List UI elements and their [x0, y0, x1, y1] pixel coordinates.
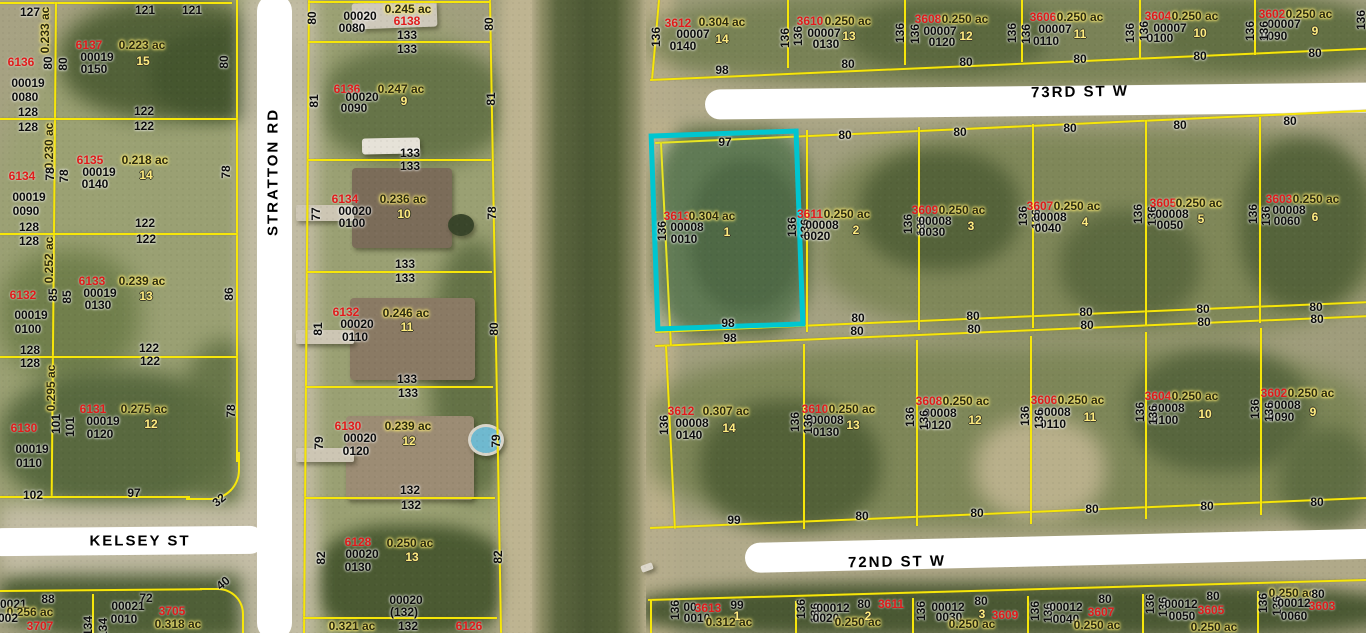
dimension-label: 00020: [343, 432, 376, 444]
lot-number-label: 11: [401, 321, 414, 333]
dimension-label: 0060: [1281, 610, 1308, 622]
dimension-label: 122: [139, 342, 159, 354]
dimension-label: 133: [397, 29, 417, 41]
dimension-label: 78: [486, 206, 498, 219]
dimension-label: 0120: [87, 428, 114, 440]
dimension-label: 121: [135, 4, 155, 16]
dimension-label: 132: [401, 499, 421, 511]
dimension-label: 136: [1144, 594, 1156, 614]
dimension-label: 00012: [1277, 597, 1310, 609]
parcel-id-label: 3611: [878, 598, 904, 610]
acreage-label: 0.250 ac: [949, 618, 996, 630]
dimension-label: 136: [915, 601, 927, 621]
dimension-label: 102: [23, 489, 43, 501]
parcel-id-label: 3705: [159, 605, 186, 617]
dimension-label: 0030: [919, 226, 946, 238]
dimension-label: 80: [1063, 122, 1076, 134]
parcel-boundary-line: [650, 497, 1366, 529]
lot-number-label: 12: [968, 414, 981, 426]
acreage-label: 0.295 ac: [45, 365, 57, 412]
lot-number-label: 11: [1074, 28, 1087, 40]
dimension-label: 136: [1020, 24, 1032, 44]
dimension-label: 136: [1134, 402, 1146, 422]
parcel-boundary-line: [665, 346, 676, 529]
street-label-72nd: 72ND ST W: [848, 554, 946, 571]
parcel-id-label: 6136: [8, 56, 35, 68]
dimension-label: 0080: [339, 22, 366, 34]
acreage-label: 0.236 ac: [380, 193, 427, 205]
parcel-id-label: 6126: [456, 620, 483, 632]
dimension-label: 133: [395, 258, 415, 270]
dimension-label: 80: [970, 507, 983, 519]
dimension-label: 82: [315, 551, 327, 564]
dimension-label: 80: [966, 310, 979, 322]
dimension-label: 101: [64, 417, 76, 437]
dimension-label: 136: [1355, 10, 1366, 30]
dimension-label: 136: [1247, 204, 1259, 224]
parcel-boundary-line: [1030, 336, 1032, 524]
lot-number-label: 6: [1312, 211, 1319, 223]
parcel-boundary-line: [650, 48, 1366, 81]
dimension-label: 80: [841, 58, 854, 70]
dimension-label: 133: [397, 43, 417, 55]
acreage-label: 0.250 ac: [387, 537, 434, 549]
acreage-label: 0.252 ac: [43, 237, 55, 284]
dimension-label: 0010: [111, 613, 138, 625]
dimension-label: 80: [1085, 503, 1098, 515]
lot-number-label: 5: [1198, 213, 1205, 225]
acreage-label: 0.318 ac: [155, 618, 202, 630]
acreage-label: 0.321 ac: [329, 620, 376, 632]
dimension-label: 134: [82, 616, 94, 633]
lot-number-label: 2: [853, 224, 860, 236]
dimension-label: 132: [400, 484, 420, 496]
dimension-label: 0020: [804, 230, 831, 242]
lot-number-label: 13: [139, 290, 152, 302]
dimension-label: 136: [1249, 399, 1261, 419]
dimension-label: 80: [57, 57, 69, 70]
lot-number-label: 4: [1082, 216, 1089, 228]
dimension-label: 78: [225, 404, 237, 417]
dimension-label: 80: [838, 129, 851, 141]
dimension-label: 80: [851, 312, 864, 324]
dimension-label: 0060: [1274, 215, 1301, 227]
dimension-label: 002: [0, 612, 18, 624]
dimension-label: 80: [953, 126, 966, 138]
parcel-id-label: 3707: [27, 620, 54, 632]
dimension-label: 80: [483, 17, 495, 30]
dimension-label: 80: [1308, 47, 1321, 59]
dimension-label: 0130: [85, 299, 112, 311]
dimension-label: 136: [1138, 21, 1150, 41]
dimension-label: 122: [140, 355, 160, 367]
acreage-label: 0.250 ac: [1074, 619, 1121, 631]
dimension-label: 0110: [342, 331, 368, 343]
street-label-stratton: STRATTON RD: [266, 108, 281, 236]
dimension-label: 133: [395, 272, 415, 284]
dimension-label: 79: [313, 436, 325, 449]
dimension-label: 80: [1196, 303, 1209, 315]
dimension-label: 80: [306, 11, 318, 24]
dimension-label: 136: [1258, 21, 1270, 41]
lot-number-label: 9: [401, 95, 408, 107]
dimension-label: 81: [485, 92, 497, 105]
lot-number-label: 12: [402, 435, 415, 447]
parcel-id-label: 6138: [394, 15, 421, 27]
dimension-label: 0080: [12, 91, 39, 103]
dimension-label: 85: [61, 290, 73, 303]
dimension-label: 79: [490, 434, 502, 447]
dimension-label: 0140: [670, 40, 697, 52]
dimension-label: 0010: [671, 233, 698, 245]
acreage-label: 0.223 ac: [119, 39, 166, 51]
dimension-label: 77: [310, 207, 322, 220]
dimension-label: 80: [1079, 306, 1092, 318]
parcel-id-label: 3605: [1198, 604, 1225, 616]
aerial-parcel-map[interactable]: 1271211210.233 ac61370001901500.223 ac15…: [0, 0, 1366, 633]
dimension-label: 00020: [340, 318, 373, 330]
acreage-label: 0.307 ac: [703, 405, 750, 417]
dimension-label: 0110: [1033, 35, 1059, 47]
dimension-label: 81: [312, 322, 324, 335]
acreage-label: 0.312 ac: [706, 616, 753, 628]
dimension-label: 82: [492, 550, 504, 563]
dimension-label: (132): [390, 606, 418, 618]
dimension-label: 80: [488, 322, 500, 335]
parcel-boundary-line: [0, 588, 202, 592]
dimension-label: 80: [1173, 119, 1186, 131]
lot-number-label: 13: [405, 551, 418, 563]
parcel-id-label: 6134: [9, 170, 36, 182]
dimension-label: 00021: [111, 600, 144, 612]
dimension-label: 0130: [813, 38, 840, 50]
dimension-label: 97: [127, 487, 140, 499]
dimension-label: 122: [134, 105, 154, 117]
dimension-label: 136: [1029, 601, 1041, 621]
dimension-label: 80: [1310, 496, 1323, 508]
acreage-label: 0.246 ac: [383, 307, 430, 319]
dimension-label: 122: [134, 120, 154, 132]
dimension-label: 136: [1257, 593, 1269, 613]
dimension-label: 121: [182, 4, 202, 16]
lot-number-label: 13: [846, 419, 859, 431]
lot-number-label: 3: [968, 220, 975, 232]
dimension-label: 133: [398, 387, 418, 399]
dimension-label: 136: [1260, 206, 1272, 226]
lot-number-label: 10: [1193, 27, 1206, 39]
dimension-label: 136: [1263, 402, 1275, 422]
dimension-label: 136: [904, 407, 916, 427]
dimension-label: 136: [1006, 23, 1018, 43]
dimension-label: 98: [715, 64, 728, 76]
dimension-label: 133: [400, 147, 420, 159]
parcel-boundary-line: [236, 0, 238, 462]
dimension-label: 00019: [11, 77, 44, 89]
dimension-label: 0140: [676, 429, 703, 441]
dimension-label: 122: [135, 217, 155, 229]
dimension-label: 99: [727, 514, 740, 526]
acreage-label: 0.275 ac: [121, 403, 168, 415]
dimension-label: 136: [1019, 406, 1031, 426]
dimension-label: 0130: [813, 426, 840, 438]
dimension-label: 85: [47, 288, 59, 301]
dimension-label: 80: [218, 55, 230, 68]
dimension-label: 98: [721, 317, 734, 329]
dimension-label: 80: [855, 510, 868, 522]
dimension-label: 80: [1193, 50, 1206, 62]
acreage-label: 0.218 ac: [122, 154, 169, 166]
dimension-label: 00019: [15, 443, 48, 455]
parcel-id-label: 6130: [11, 422, 38, 434]
lot-number-label: 13: [842, 30, 855, 42]
dimension-label: 80: [1073, 53, 1086, 65]
dimension-label: 80: [42, 56, 54, 69]
dimension-label: 136: [1132, 204, 1144, 224]
parcel-boundary-line: [803, 344, 805, 529]
dimension-label: 80: [850, 325, 863, 337]
dimension-label: 133: [400, 160, 420, 172]
dimension-label: 97: [718, 136, 731, 148]
dimension-label: 136: [1124, 23, 1136, 43]
dimension-label: 136: [802, 414, 814, 434]
street-label-kelsey: KELSEY ST: [89, 534, 190, 549]
street-label-73rd: 73RD ST W: [1031, 84, 1129, 101]
dimension-label: 136: [1244, 21, 1256, 41]
parcel-id-label: 3609: [992, 609, 1019, 621]
acreage-label: 0.250 ac: [1191, 621, 1238, 633]
dimension-label: 136: [658, 415, 670, 435]
lot-number-label: 14: [722, 422, 735, 434]
dimension-label: 80: [1098, 593, 1111, 605]
lot-number-label: 10: [397, 208, 410, 220]
dimension-label: 80: [974, 595, 987, 607]
vegetation-patch: [1280, 428, 1366, 530]
parcel-boundary-corner: [200, 588, 244, 633]
pond: [448, 214, 474, 236]
dimension-label: 136: [894, 23, 906, 43]
dimension-label: 78: [58, 169, 70, 182]
parcel-boundary-line: [916, 340, 918, 526]
lot-number-label: 12: [959, 30, 972, 42]
dimension-label: 101: [50, 414, 62, 434]
dimension-label: 81: [308, 94, 320, 107]
dimension-label: 128: [18, 121, 38, 133]
dimension-label: 136: [918, 410, 930, 430]
lot-number-label: 1: [724, 226, 731, 238]
lot-number-label: 9: [1310, 406, 1317, 418]
dimension-label: 136: [669, 600, 681, 620]
dimension-label: 00019: [12, 191, 45, 203]
lot-number-label: 11: [1084, 411, 1097, 423]
lot-number-label: 9: [1312, 25, 1319, 37]
dimension-label: 0090: [341, 102, 368, 114]
dimension-label: 136: [1147, 405, 1159, 425]
parcel-id-label: 3607: [1088, 606, 1115, 618]
dimension-label: 127: [20, 6, 40, 18]
dimension-label: 80: [1310, 313, 1323, 325]
lot-number-label: 12: [144, 418, 157, 430]
dimension-label: 98: [723, 332, 736, 344]
dimension-label: 0100: [339, 217, 366, 229]
dimension-label: 00019: [86, 415, 119, 427]
dimension-label: 0040: [1035, 222, 1062, 234]
lot-number-label: 14: [139, 169, 152, 181]
dimension-label: 128: [18, 106, 38, 118]
dimension-label: 0130: [345, 561, 372, 573]
dimension-label: 80: [1283, 115, 1296, 127]
dimension-label: 134: [97, 618, 109, 633]
dimension-label: 0110: [16, 457, 42, 469]
dimension-label: 0120: [343, 445, 370, 457]
dimension-label: 00019: [14, 309, 47, 321]
dimension-label: 0100: [15, 323, 42, 335]
dimension-label: 128: [20, 357, 40, 369]
dimension-label: 0140: [82, 178, 109, 190]
dimension-label: 86: [223, 287, 235, 300]
acreage-label: 0.250 ac: [835, 616, 882, 628]
dimension-label: 136: [779, 28, 791, 48]
dimension-label: 136: [789, 412, 801, 432]
parcel-id-label: 6132: [10, 289, 37, 301]
dimension-label: 136: [1033, 409, 1045, 429]
dimension-label: 136: [656, 221, 668, 241]
acreage-label: 0.239 ac: [385, 420, 432, 432]
dimension-label: 0050: [1157, 219, 1184, 231]
dimension-label: 136: [650, 27, 662, 47]
acreage-label: 0.230 ac: [43, 123, 55, 170]
parcel-boundary-line: [650, 600, 652, 633]
lot-number-label: 15: [136, 55, 149, 67]
dimension-label: 122: [136, 233, 156, 245]
dimension-label: 128: [19, 235, 39, 247]
dimension-label: 78: [220, 165, 232, 178]
street-band-72nd: [745, 528, 1366, 573]
dimension-label: 0090: [13, 205, 40, 217]
acreage-label: 0.233 ac: [39, 7, 51, 54]
dimension-label: 80: [1200, 500, 1213, 512]
parcel-boundary-line: [1145, 332, 1147, 519]
lot-number-label: 14: [715, 33, 728, 45]
lot-number-label: 10: [1198, 408, 1211, 420]
dimension-label: 0120: [929, 36, 956, 48]
dimension-label: 136: [792, 26, 804, 46]
parcel-id-label: 3603: [1309, 600, 1336, 612]
dimension-label: 80: [1197, 316, 1210, 328]
dimension-label: 80: [967, 323, 980, 335]
acreage-label: 0.239 ac: [119, 275, 166, 287]
dimension-label: 132: [398, 620, 418, 632]
parcel-boundary-corner: [186, 452, 240, 500]
dimension-label: 00020: [345, 548, 378, 560]
dimension-label: 136: [795, 599, 807, 619]
dimension-label: 136: [909, 24, 921, 44]
dimension-label: 80: [1206, 590, 1219, 602]
canal: [532, 0, 646, 633]
dimension-label: 80: [1080, 319, 1093, 331]
street-band-stratton: [257, 0, 292, 633]
dimension-label: 80: [959, 56, 972, 68]
dimension-label: 128: [20, 344, 40, 356]
dimension-label: 128: [19, 221, 39, 233]
dimension-label: 133: [397, 373, 417, 385]
dimension-label: 88: [41, 593, 54, 605]
dimension-label: 0150: [81, 63, 108, 75]
dimension-label: 78: [44, 167, 56, 180]
